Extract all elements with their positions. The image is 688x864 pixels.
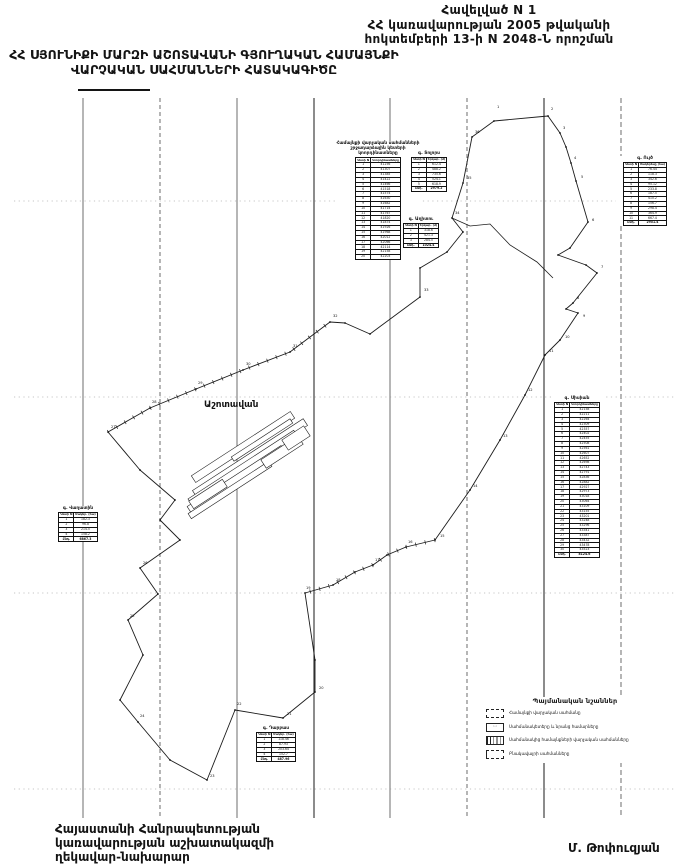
boundary-point — [282, 717, 284, 719]
boundary-point — [142, 654, 144, 656]
boundary-point — [314, 691, 316, 693]
boundary-point-number: 15 — [440, 534, 445, 538]
settlement-border-icon — [486, 750, 504, 759]
boundary-point — [446, 251, 448, 253]
boundary-point — [159, 519, 161, 521]
boundary-point — [596, 272, 598, 274]
boundary-point-number: 33 — [424, 288, 429, 292]
boundary-point — [314, 659, 316, 661]
boundary-point-number: 21 — [287, 712, 292, 716]
boundary-point — [174, 499, 176, 501]
legend-item-label: Բնակավայրի սահմանները — [509, 752, 569, 757]
boundary-point — [471, 136, 473, 138]
legend-item-label: Սահմանակետերը և նրանց համարները — [509, 725, 598, 730]
boundary-point-number: 13 — [503, 434, 508, 438]
boundary-point — [462, 182, 464, 184]
boundary-point — [585, 264, 587, 266]
boundary-point — [169, 759, 171, 761]
boundary-point — [139, 567, 141, 569]
footer-line: Հայաստանի Հանրապետության — [55, 822, 274, 836]
boundary-point — [332, 584, 334, 586]
boundary-point — [557, 254, 559, 256]
coords-table-aghitu: գ. ԱղիտուԿետի NԵրկար. (մ)1318.62421.3328… — [401, 217, 441, 248]
boundary-point — [419, 267, 421, 269]
signature-name: Մ. Թոփուզյան — [568, 841, 660, 855]
boundary-point — [499, 439, 501, 441]
boundary-point-number: 34 — [455, 211, 460, 215]
page-title-line: ՎԱՐՉԱԿԱՆ ՍԱՀՄԱՆՆԵՐԻ ՀԱՏԱԿԱԳԻԾԸ — [0, 62, 408, 77]
boundary-point-number: 23 — [210, 774, 215, 778]
boundary-point-number: 12 — [528, 388, 533, 392]
boundary-point — [569, 247, 571, 249]
boundary-point-number: 10 — [565, 335, 570, 339]
adjacent-boundary-icon — [486, 736, 504, 745]
boundary-point — [137, 721, 139, 723]
boundary-point — [577, 312, 579, 314]
boundary-point-number: 28 — [152, 400, 157, 404]
boundary-point — [304, 592, 306, 594]
scanned-map-page: 1234567891011121314151617181920212223242… — [0, 0, 688, 864]
footer-authority: Հայաստանի Հանրապետության կառավարության ա… — [55, 822, 274, 864]
boundary-dash-icon — [486, 709, 504, 718]
boundary-point-number: 9 — [583, 314, 586, 318]
boundary-point — [559, 339, 561, 341]
boundary-point — [570, 162, 572, 164]
boundary-point-number: 6 — [592, 218, 595, 222]
boundary-point — [369, 333, 371, 335]
boundary-point — [242, 369, 244, 371]
legend-item-label: Սահմանակից համայնքների վարչական սահմաննե… — [509, 738, 629, 743]
boundary-point-number: 2 — [551, 107, 553, 111]
appendix-line: ՀՀ կառավարության 2005 թվականի — [296, 18, 682, 33]
legend-item-label: Համայնքի վարչական սահմանը — [509, 711, 581, 716]
boundary-point-number: 3 — [563, 126, 565, 130]
legend-item: Սահմանակից համայնքների վարչական սահմաննե… — [486, 736, 670, 745]
boundary-point — [572, 302, 574, 304]
boundary-point-number: 4 — [574, 156, 577, 160]
boundary-point-number: 19 — [306, 586, 311, 590]
boundary-point — [386, 554, 388, 556]
boundary-point — [559, 132, 561, 134]
boundary-point — [469, 489, 471, 491]
boundary-point-number: 26 — [143, 561, 148, 565]
boundary-point-number: 17 — [375, 558, 380, 562]
boundary-point — [157, 593, 159, 595]
boundary-point — [565, 146, 567, 148]
appendix-header: Հավելված N 1 ՀՀ կառավարության 2005 թվակա… — [296, 3, 682, 47]
page-title: ՀՀ ՍՅՈՒՆԻՔԻ ՄԱՐԶԻ ԱՇՈՏԱՎԱՆԻ ԳՅՈՒՂԱԿԱՆ ՀԱ… — [0, 47, 408, 77]
boundary-point — [179, 539, 181, 541]
boundary-point — [289, 351, 291, 353]
boundary-point-number: 25 — [130, 614, 135, 618]
boundary-point — [139, 469, 141, 471]
boundary-point-number: 16 — [408, 540, 413, 544]
boundary-point — [206, 779, 208, 781]
boundary-point — [587, 221, 589, 223]
boundary-point — [565, 308, 567, 310]
boundary-point-number: 27 — [111, 425, 116, 429]
title-underline — [78, 89, 150, 91]
legend: Պայմանական նշաններ Համայնքի վարչական սահ… — [480, 697, 670, 763]
boundary-point-number: 14 — [473, 484, 478, 488]
boundary-point — [419, 296, 421, 298]
boundary-point-number: 36 — [475, 130, 480, 134]
boundary-point-number: 32 — [333, 314, 338, 318]
boundary-point — [547, 115, 549, 117]
boundary-point — [575, 180, 577, 182]
page-title-line: ՀՀ ՍՅՈՒՆԻՔԻ ՄԱՐԶԻ ԱՇՈՏԱՎԱՆԻ ԳՅՈՒՂԱԿԱՆ ՀԱ… — [0, 47, 408, 62]
boundary-point — [462, 231, 464, 233]
boundary-point — [344, 322, 346, 324]
coords-table-uyts: գ. ՈւյծԿետի NՄակերեսը (հա)176.442118.333… — [616, 156, 674, 226]
boundary-point-number: 7 — [601, 265, 603, 269]
legend-item: ◦◦ Սահմանակետերը և նրանց համարները — [486, 723, 670, 732]
legend-item: Բնակավայրի սահմանները — [486, 750, 670, 759]
boundary-point-number: 30 — [246, 362, 251, 366]
settlement-label: Աշոտավան — [204, 400, 258, 410]
boundary-point — [127, 619, 129, 621]
boundary-point-number: 35 — [467, 176, 472, 180]
boundary-point-number: 1 — [497, 105, 499, 109]
boundary-point — [544, 354, 546, 356]
coords-table-vaghatin: գ. ՎաղատինԿետի NՄակեր. (հա)1182.3296.832… — [50, 506, 106, 542]
coords-table-tolors: գ. ՏոլորսԿետի NԵրկար. (մ)1612.42488.2373… — [408, 151, 450, 192]
boundary-point — [524, 394, 526, 396]
coords-table-sisian: գ. ՍիսիանԿետի NԿոորդինատները142158242211… — [551, 396, 603, 558]
boundary-point-number: 29 — [198, 381, 203, 385]
boundary-point-number: 8 — [577, 296, 580, 300]
boundary-point-number: 31 — [293, 344, 298, 348]
boundary-point-number: 22 — [237, 702, 242, 706]
boundary-point-number: 24 — [140, 714, 145, 718]
boundary-tick-marks — [108, 322, 330, 432]
legend-title: Պայմանական նշաններ — [480, 697, 670, 705]
boundary-point — [493, 120, 495, 122]
appendix-line: Հավելված N 1 — [296, 3, 682, 18]
boundary-point — [119, 699, 121, 701]
legend-item: Համայնքի վարչական սահմանը — [486, 709, 670, 718]
boundary-point — [234, 709, 236, 711]
appendix-line: հոկտեմբերի 13-ի N 2048-Ն որոշման — [296, 32, 682, 47]
boundary-point — [329, 321, 331, 323]
boundary-point-number: 11 — [549, 349, 554, 353]
coords-table-darbas: գ. ԴարբասԿետի NՄակեր. (հա)1118.46287.933… — [246, 726, 306, 762]
footer-line: կառավարության աշխատակազմի — [55, 836, 274, 850]
boundary-point-number: 18 — [336, 578, 341, 582]
boundary-point-icon: ◦◦ — [486, 723, 504, 732]
footer-line: ղեկավար-նախարար — [55, 850, 274, 864]
boundary-point-number: 20 — [319, 686, 324, 690]
boundary-point-number: 5 — [581, 175, 583, 179]
